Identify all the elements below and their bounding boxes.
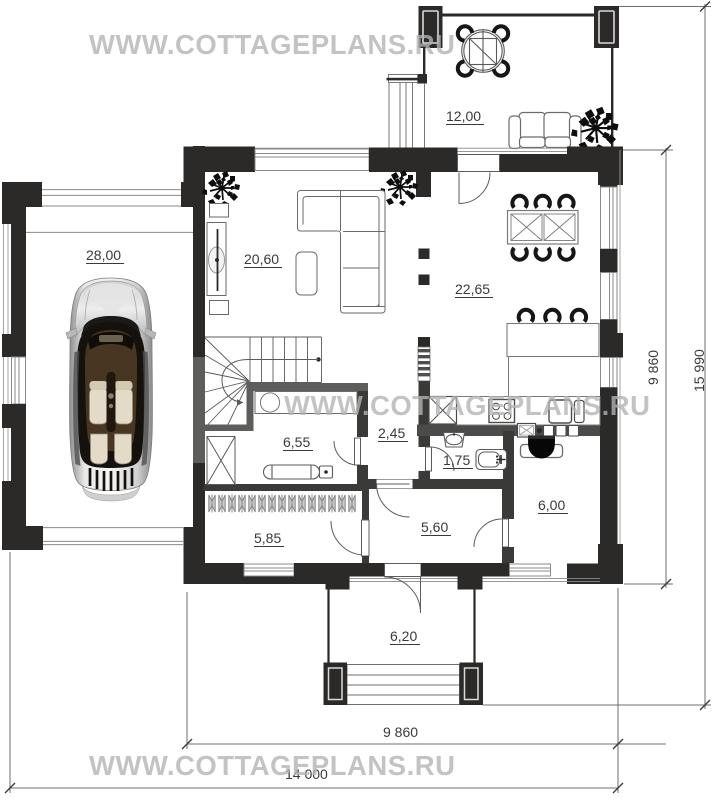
svg-text:22,65: 22,65 bbox=[455, 281, 490, 297]
svg-text:1,75: 1,75 bbox=[443, 452, 470, 468]
svg-text:5,60: 5,60 bbox=[421, 519, 448, 535]
svg-text:9 860: 9 860 bbox=[645, 350, 661, 385]
svg-text:12,00: 12,00 bbox=[446, 108, 481, 124]
svg-text:WWW.COTTAGEPLANS.RU: WWW.COTTAGEPLANS.RU bbox=[89, 29, 455, 60]
svg-text:6,00: 6,00 bbox=[538, 497, 565, 513]
svg-text:5,85: 5,85 bbox=[254, 530, 281, 546]
svg-text:9 860: 9 860 bbox=[383, 724, 418, 740]
svg-text:20,60: 20,60 bbox=[244, 251, 279, 267]
svg-text:2,45: 2,45 bbox=[378, 425, 405, 441]
svg-text:6,20: 6,20 bbox=[390, 628, 417, 644]
svg-text:6,55: 6,55 bbox=[283, 434, 310, 450]
svg-text:WWW.COTTAGEPLANS.RU: WWW.COTTAGEPLANS.RU bbox=[89, 750, 455, 781]
svg-text:WWW.COTTAGEPLANS.RU: WWW.COTTAGEPLANS.RU bbox=[284, 390, 650, 421]
svg-text:15 990: 15 990 bbox=[691, 349, 707, 392]
svg-text:28,00: 28,00 bbox=[86, 247, 121, 263]
